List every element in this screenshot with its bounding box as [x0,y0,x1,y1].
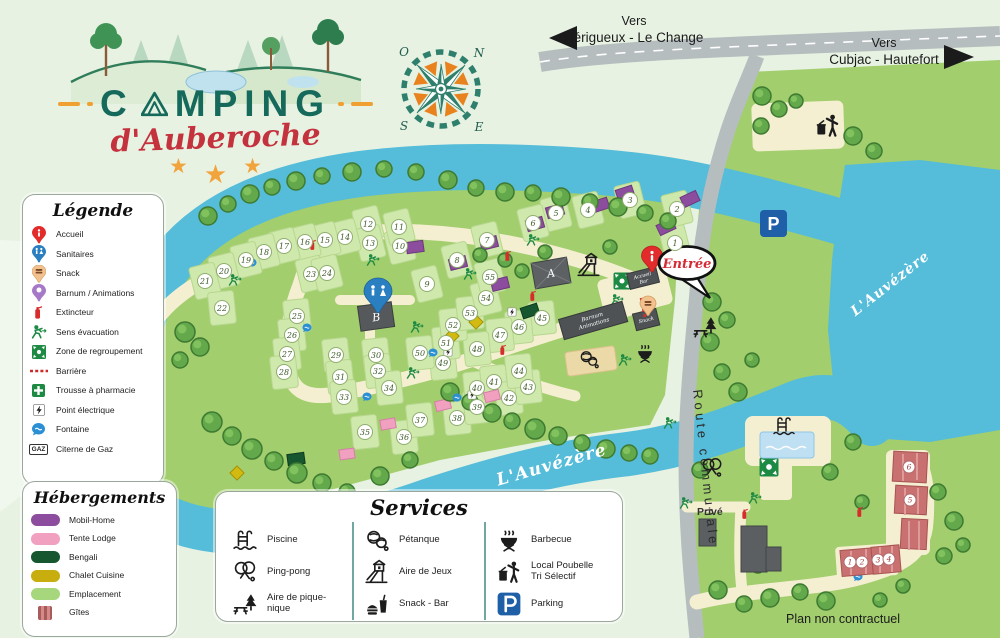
pitch-number: 3 [627,196,632,205]
tree-highlight [747,355,753,361]
tree-highlight [938,550,945,557]
tree-highlight [201,209,209,217]
pitch-number: 2 [673,205,679,214]
tree-highlight [738,598,745,605]
pitch-number: 48 [471,345,482,354]
pitch-number: 41 [488,378,499,387]
pitch-number: 13 [365,239,375,248]
heberg-label: Chalet Cuisine [69,571,124,580]
service-petanque: Pétanque [364,524,480,556]
legend-item-extincteur: Extincteur [29,303,157,323]
accommodation-unit [380,418,397,430]
legend-label: Fontaine [56,425,89,434]
point-electrique-icon [29,404,48,416]
compass-east-label: E [474,120,484,134]
legend-item-pharmacie: Trousse à pharmacie [29,381,157,401]
gite-number: 1 [848,558,853,567]
star-icon: ★ [204,159,227,190]
waste-sorting-icon [496,559,522,585]
pitch-number: 50 [415,349,425,358]
pitch-number: 36 [399,433,409,442]
tree-highlight [205,415,214,424]
pitch-number: 29 [330,351,341,360]
legend-title: Légende [29,201,157,221]
services-col-2: Pétanque Aire de Jeux Snack - Bar [352,522,484,620]
tree-highlight [662,215,669,222]
point-electrique-marker [508,308,516,316]
sanitaires-pin-icon [29,245,48,263]
gites-swatch [38,606,52,620]
legend-item-evacuation: Sens évacuation [29,323,157,343]
tree-highlight [716,366,723,373]
tree-highlight [731,385,739,393]
services-title: Services [216,495,622,520]
legend-label: Barnum / Animations [56,289,134,298]
pitch-number: 6 [530,219,535,228]
pitch-number: 42 [503,394,514,403]
heberg-label: Gîtes [69,608,89,617]
legend-label: Trousse à pharmacie [56,386,136,395]
tree-highlight [178,325,187,334]
snack-pin-icon [29,265,48,283]
pitch-number: 20 [218,267,229,276]
tree-highlight [373,469,381,477]
service-poubelle: Local PoubelleTri Sélectif [496,556,612,588]
river-wide-section [828,160,1000,442]
accueil-pin-icon [29,226,48,244]
pitch-number: 8 [454,256,459,265]
piscine-icon [232,527,258,553]
pitch-number: 9 [424,280,429,289]
pitch-number: 52 [448,321,458,330]
tree-highlight [611,200,619,208]
service-label: Aire de pique-nique [267,592,326,614]
playground-icon [364,559,390,585]
service-label: Ping-pong [267,566,310,577]
tree-highlight [846,129,854,137]
service-label: Parking [531,598,563,609]
pitch-number: 12 [363,220,373,229]
chalet-swatch [31,570,60,582]
tree-highlight [174,354,181,361]
tree-highlight [947,514,955,522]
tree-highlight [441,173,449,181]
gite-number: 4 [886,555,892,564]
pingpong-icon [232,559,258,585]
legend-item-electrique: Point électrique [29,401,157,421]
pitch-number: 24 [321,269,332,278]
pharmacie-icon [29,384,48,397]
pitch-number: 51 [441,339,451,348]
service-label: Pétanque [399,534,440,545]
petanque-icon [364,527,390,553]
legend-label: Snack [56,269,80,278]
service-label: Snack - Bar [399,598,449,609]
direction-right-line2: Cubjac - Hautefort [829,52,939,67]
hebergements-panel: Hébergements Mobil-Home Tente Lodge Beng… [22,481,177,637]
tree-highlight [315,476,323,484]
pitch-number: 19 [241,256,251,265]
pitch-number: 39 [472,403,482,412]
gite-number: 6 [907,463,912,472]
accommodation-unit [406,240,424,253]
legend-label: Zone de regroupement [56,347,142,356]
regroupement-icon [29,345,48,359]
pitch-number: 30 [371,351,381,360]
tree-highlight [721,314,728,321]
pitch-number: 14 [340,233,350,242]
pitch-number: 27 [281,350,293,359]
tree-highlight [528,422,537,431]
barriere-icon [29,368,48,374]
heberg-item-tentelodge: Tente Lodge [31,530,168,549]
pitch-number: 45 [536,314,547,323]
tree-highlight [576,437,583,444]
service-pingpong: Ping-pong [232,556,348,588]
pitch-number: 15 [320,236,330,245]
pitch-number: 38 [452,414,462,423]
gite-number: 5 [908,496,913,505]
heberg-item-emplacement: Emplacement [31,585,168,604]
logo-dash-icon [351,102,373,105]
legend-label: Barrière [56,367,86,376]
compass-west-label: O [399,45,409,59]
legend-label: Accueil [56,230,83,239]
bengali-swatch [31,551,60,563]
building-a: A [531,257,571,289]
tree-highlight [506,415,513,422]
tree-highlight [410,166,417,173]
service-barbecue: Barbecue [496,524,612,556]
legend-item-barnum: Barnum / Animations [29,284,157,304]
parking-sign-label: P [767,214,779,234]
tree-highlight [475,250,481,256]
pitch-number: 31 [335,373,345,382]
tree-highlight [794,586,801,593]
parking-icon [496,591,522,617]
tree-highlight [755,120,762,127]
tree-highlight [245,442,254,451]
hebergements-title: Hébergements [31,488,168,507]
tentelodge-swatch [31,533,60,545]
tree-highlight [378,163,385,170]
heberg-label: Emplacement [69,590,121,599]
legend-item-accueil: Accueil [29,225,157,245]
pitch-number: 10 [395,242,405,251]
legend-label: Citerne de Gaz [56,445,113,454]
pitch-number: 32 [373,367,383,376]
tree-highlight [225,429,233,437]
picnic-icon [232,591,258,617]
tree-highlight [267,454,275,462]
direction-left-line2: Périgueux - Le Change [565,30,704,45]
tree-highlight [500,255,506,261]
tree-highlight [773,103,780,110]
pitch-number: 25 [291,312,302,321]
pitch-number: 22 [216,304,227,313]
tree-highlight [958,540,964,546]
tree-highlight [404,454,411,461]
heberg-item-mobilhome: Mobil-Home [31,511,168,530]
service-parking: Parking [496,588,612,620]
tree-highlight [605,242,611,248]
tent-icon [141,90,168,118]
tree-highlight [540,247,546,253]
legend-panel: Légende Accueil Sanitaires Snack Barnum … [22,194,164,485]
tree-highlight [875,595,881,601]
legend-label: Sanitaires [56,250,94,259]
pitch-number: 11 [394,223,404,232]
camping-map-page: A B Accueil Bar Snack Barnum Animations [0,0,1000,638]
pitch-number: 46 [513,323,524,332]
tree-highlight [644,450,651,457]
tree-highlight [193,340,201,348]
tree-highlight [551,429,559,437]
pitch-number: 5 [553,209,558,218]
legend-item-regroupement: Zone de regroupement [29,342,157,362]
pitch-number: 18 [259,248,269,257]
heberg-label: Bengali [69,553,97,562]
legend-item-barriere: Barrière [29,362,157,382]
tree-highlight [898,581,904,587]
pitch-number: 28 [278,368,289,377]
prive-label: Privé [697,506,723,518]
pitch-number: 1 [672,239,677,248]
heberg-label: Tente Lodge [69,534,116,543]
service-snackbar: Snack - Bar [364,588,480,620]
tree-highlight [819,594,827,602]
direction-right-line1: Vers [871,36,896,50]
tree-highlight [470,182,477,189]
legend-item-snack: Snack [29,264,157,284]
tree-highlight [791,96,797,102]
gaz-icon: GAZ [29,444,48,455]
tree-highlight [847,436,854,443]
pitch-number: 40 [471,384,482,393]
tree-highlight [485,406,493,414]
gaz-icon-text: GAZ [29,444,49,455]
service-label: Piscine [267,534,298,545]
legend-label: Point électrique [56,406,115,415]
pool [760,432,814,458]
pitch-number: 54 [481,294,491,303]
legend-label: Extincteur [56,308,94,317]
pitch-number: 34 [384,384,394,393]
pitch-number: 43 [522,383,533,392]
pitch-number: 49 [437,359,448,368]
tree-highlight [711,583,719,591]
tree-highlight [517,266,523,272]
snackbar-icon [364,591,390,617]
accommodation-unit [339,448,355,460]
pitch-number: 53 [465,309,475,318]
services-col-1: Piscine Ping-pong Aire de pique-nique [222,522,352,620]
service-label: Aire de Jeux [399,566,452,577]
pitch-number: 26 [286,331,297,340]
evacuation-icon [29,325,48,339]
tree-highlight [763,591,771,599]
disclaimer-label: Plan non contractuel [786,612,900,626]
heberg-label: Mobil-Home [69,516,115,525]
compass-north-label: N [473,46,485,60]
star-icon: ★ [169,154,188,185]
tree-highlight [527,187,534,194]
compass-south-label: S [400,119,408,133]
services-panel: Services Piscine Ping-pong Aire de pique… [215,491,623,622]
tree-highlight [222,198,229,205]
pitch-number: 16 [300,238,310,247]
tree-highlight [639,207,646,214]
heberg-item-gites: Gîtes [31,604,168,623]
gite-number: 3 [876,556,881,565]
tree-highlight [443,385,451,393]
pitch-number: 17 [279,242,290,251]
star-icon: ★ [243,154,262,185]
tree-highlight [868,145,875,152]
service-airejeux: Aire de Jeux [364,556,480,588]
legend-label: Sens évacuation [56,328,119,337]
mobilhome-swatch [31,514,60,526]
emplacement-swatch [31,588,60,600]
services-col-3: Barbecue Local PoubelleTri Sélectif Park… [484,522,616,620]
regroupement-marker [760,458,779,477]
pitch-number: 35 [360,428,370,437]
tree-highlight [243,187,251,195]
logo-dash-icon [58,102,80,105]
pitch-number: 44 [513,367,524,376]
barnum-pin-icon [29,284,48,302]
extincteur-icon [29,306,48,319]
heberg-item-bengali: Bengali [31,548,168,567]
service-label: Barbecue [531,534,572,545]
tree-highlight [703,335,711,343]
tree-highlight [932,486,939,493]
pitch-number: 33 [339,393,349,402]
service-label-line2: Tri Sélectif [531,572,593,583]
tree-highlight [554,190,562,198]
logo-dash-icon [87,102,93,105]
direction-left-line1: Vers [621,14,646,28]
gite-number: 2 [859,558,865,567]
tree-highlight [623,447,630,454]
tree-highlight [857,497,863,503]
tree-highlight [498,185,506,193]
pitch-number: 21 [199,277,210,286]
pitch-number: 37 [415,416,426,425]
camping-logo: C MPING d'Auberoche ★ ★ ★ [58,12,373,185]
tree-highlight [755,89,763,97]
heberg-item-chalet: Chalet Cuisine [31,567,168,586]
pitch-number: 55 [485,273,495,282]
parking-sign: P [760,210,787,237]
service-piquenique: Aire de pique-nique [232,588,348,620]
entrance-label: Entrée [662,257,712,272]
tree-highlight [290,466,299,475]
pitch-number: 47 [494,331,506,340]
tree-highlight [824,466,831,473]
logo-dash-icon [338,102,344,105]
legend-item-fontaine: Fontaine [29,420,157,440]
fontaine-icon [29,423,48,436]
pitch-number: 4 [584,206,590,215]
legend-item-gaz: GAZ Citerne de Gaz [29,440,157,460]
pitch-number: 23 [305,270,316,279]
service-piscine: Piscine [232,524,348,556]
logo-title-c: C [100,83,134,125]
legend-item-sanitaires: Sanitaires [29,245,157,265]
barbecue-icon [496,527,522,553]
